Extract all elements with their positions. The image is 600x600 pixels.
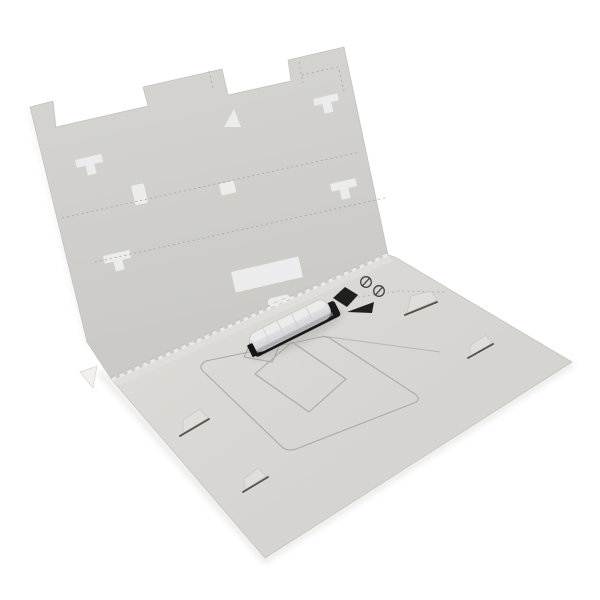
product-photo — [0, 0, 600, 600]
photo-canvas — [0, 0, 600, 600]
